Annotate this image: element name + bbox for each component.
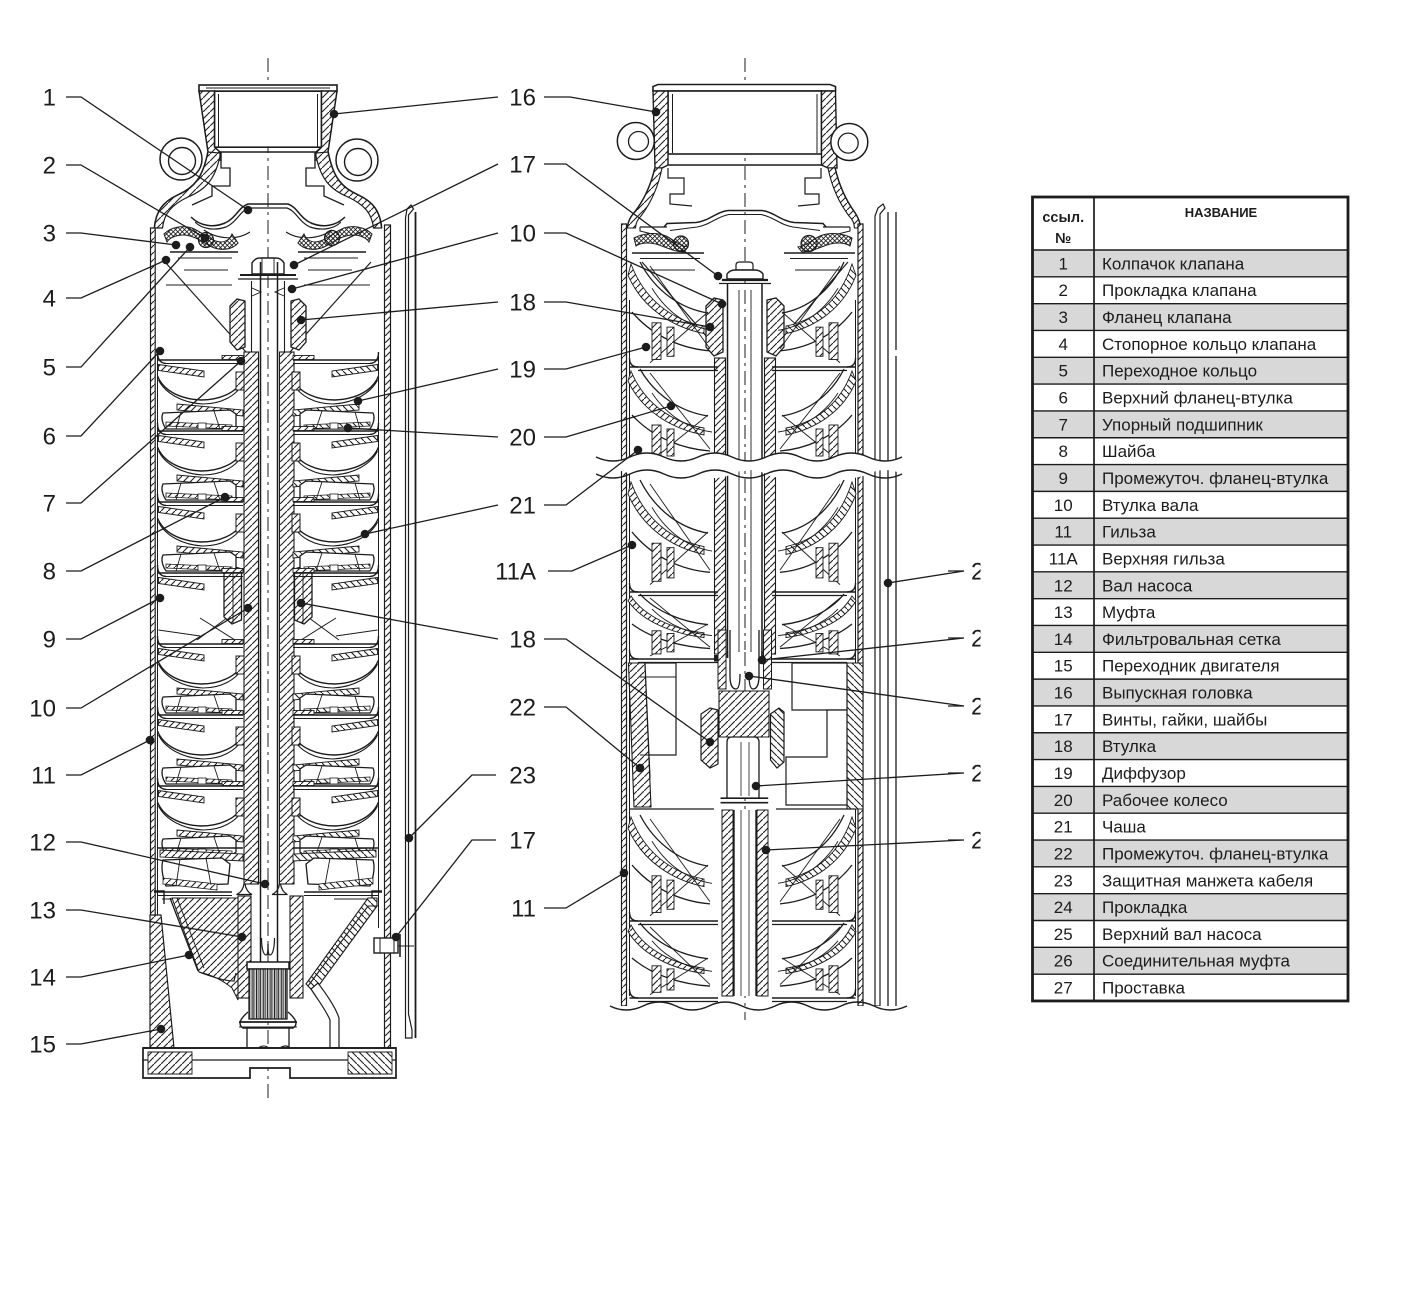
svg-text:23: 23 [509,763,536,790]
svg-text:Фильтровальная сетка: Фильтровальная сетка [1102,630,1281,649]
svg-text:1: 1 [1059,254,1068,273]
svg-text:16: 16 [509,85,536,112]
svg-text:11: 11 [31,763,56,790]
svg-text:3: 3 [1059,308,1068,327]
svg-text:Верхний вал насоса: Верхний вал насоса [1102,925,1262,944]
svg-text:19: 19 [1054,764,1073,783]
svg-text:18: 18 [509,627,536,654]
svg-text:14: 14 [1054,630,1073,649]
svg-text:13: 13 [29,898,56,925]
svg-text:11: 11 [511,896,536,923]
svg-text:15: 15 [29,1032,56,1059]
svg-text:8: 8 [43,559,56,586]
svg-text:Втулка: Втулка [1102,737,1157,756]
svg-text:5: 5 [43,355,56,382]
svg-text:Упорный подшипник: Упорный подшипник [1102,415,1263,434]
svg-text:10: 10 [1054,496,1073,515]
svg-text:17: 17 [509,152,536,179]
svg-text:11A: 11A [1049,549,1079,568]
svg-text:24: 24 [1054,898,1073,917]
svg-text:27: 27 [1054,979,1073,998]
svg-text:7: 7 [1059,415,1068,434]
svg-text:Стопорное кольцо клапана: Стопорное кольцо клапана [1102,335,1317,354]
svg-text:Выпускная головка: Выпускная головка [1102,684,1253,703]
svg-text:Промежуточ. фланец-втулка: Промежуточ. фланец-втулка [1102,844,1329,863]
svg-text:Втулка вала: Втулка вала [1102,496,1199,515]
svg-text:2: 2 [1059,281,1068,300]
svg-text:18: 18 [1054,737,1073,756]
svg-text:Чаша: Чаша [1102,818,1146,837]
svg-text:Верхняя гильза: Верхняя гильза [1102,549,1225,568]
svg-text:Проставка: Проставка [1102,979,1186,998]
svg-text:3: 3 [43,221,56,248]
svg-text:6: 6 [1059,389,1068,408]
svg-text:6: 6 [43,424,56,451]
svg-text:11A: 11A [495,559,536,586]
svg-text:Вал насоса: Вал насоса [1102,576,1193,595]
svg-text:Прокладка клапана: Прокладка клапана [1102,281,1257,300]
svg-text:15: 15 [1054,657,1073,676]
svg-text:25: 25 [1054,925,1073,944]
svg-text:8: 8 [1059,442,1068,461]
svg-text:Переходное кольцо: Переходное кольцо [1102,362,1257,381]
svg-text:19: 19 [509,357,536,384]
svg-text:20: 20 [1054,791,1073,810]
svg-text:23: 23 [1054,871,1073,890]
svg-text:17: 17 [1054,710,1073,729]
svg-text:Защитная манжета кабеля: Защитная манжета кабеля [1102,871,1313,890]
svg-text:Винты, гайки, шайбы: Винты, гайки, шайбы [1102,710,1267,729]
svg-text:18: 18 [509,290,536,317]
svg-text:14: 14 [29,965,56,992]
svg-text:9: 9 [1059,469,1068,488]
svg-text:10: 10 [509,221,536,248]
svg-text:Шайба: Шайба [1102,442,1156,461]
svg-text:Диффузор: Диффузор [1102,764,1186,783]
svg-text:11: 11 [1054,523,1072,542]
svg-text:22: 22 [509,695,536,722]
svg-text:Муфта: Муфта [1102,603,1156,622]
svg-text:4: 4 [1059,335,1068,354]
svg-text:26: 26 [1054,952,1073,971]
svg-text:1: 1 [43,85,56,112]
svg-text:7: 7 [43,491,56,518]
svg-text:2: 2 [43,153,56,180]
svg-text:Рабочее колесо: Рабочее колесо [1102,791,1228,810]
svg-text:Прокладка: Прокладка [1102,898,1188,917]
svg-text:ссыл.: ссыл. [1042,210,1084,226]
svg-text:Гильза: Гильза [1102,523,1156,542]
svg-text:4: 4 [43,286,56,313]
svg-text:20: 20 [509,425,536,452]
svg-text:№: № [1055,231,1071,247]
svg-text:Верхний фланец-втулка: Верхний фланец-втулка [1102,389,1293,408]
svg-text:5: 5 [1059,362,1068,381]
svg-text:Промежуточ. фланец-втулка: Промежуточ. фланец-втулка [1102,469,1329,488]
svg-text:10: 10 [29,696,56,723]
svg-text:НАЗВАНИЕ: НАЗВАНИЕ [1185,205,1258,220]
svg-text:22: 22 [1054,844,1073,863]
svg-text:Фланец клапана: Фланец клапана [1102,308,1232,327]
svg-text:21: 21 [509,493,536,520]
svg-text:9: 9 [43,627,56,654]
svg-text:17: 17 [509,828,536,855]
svg-text:12: 12 [29,830,56,857]
svg-text:13: 13 [1054,603,1073,622]
svg-text:Соединительная муфта: Соединительная муфта [1102,952,1291,971]
svg-text:Колпачок клапана: Колпачок клапана [1102,254,1245,273]
svg-text:12: 12 [1054,576,1073,595]
svg-text:21: 21 [1054,818,1073,837]
svg-text:16: 16 [1054,684,1073,703]
svg-text:Переходник двигателя: Переходник двигателя [1102,657,1280,676]
